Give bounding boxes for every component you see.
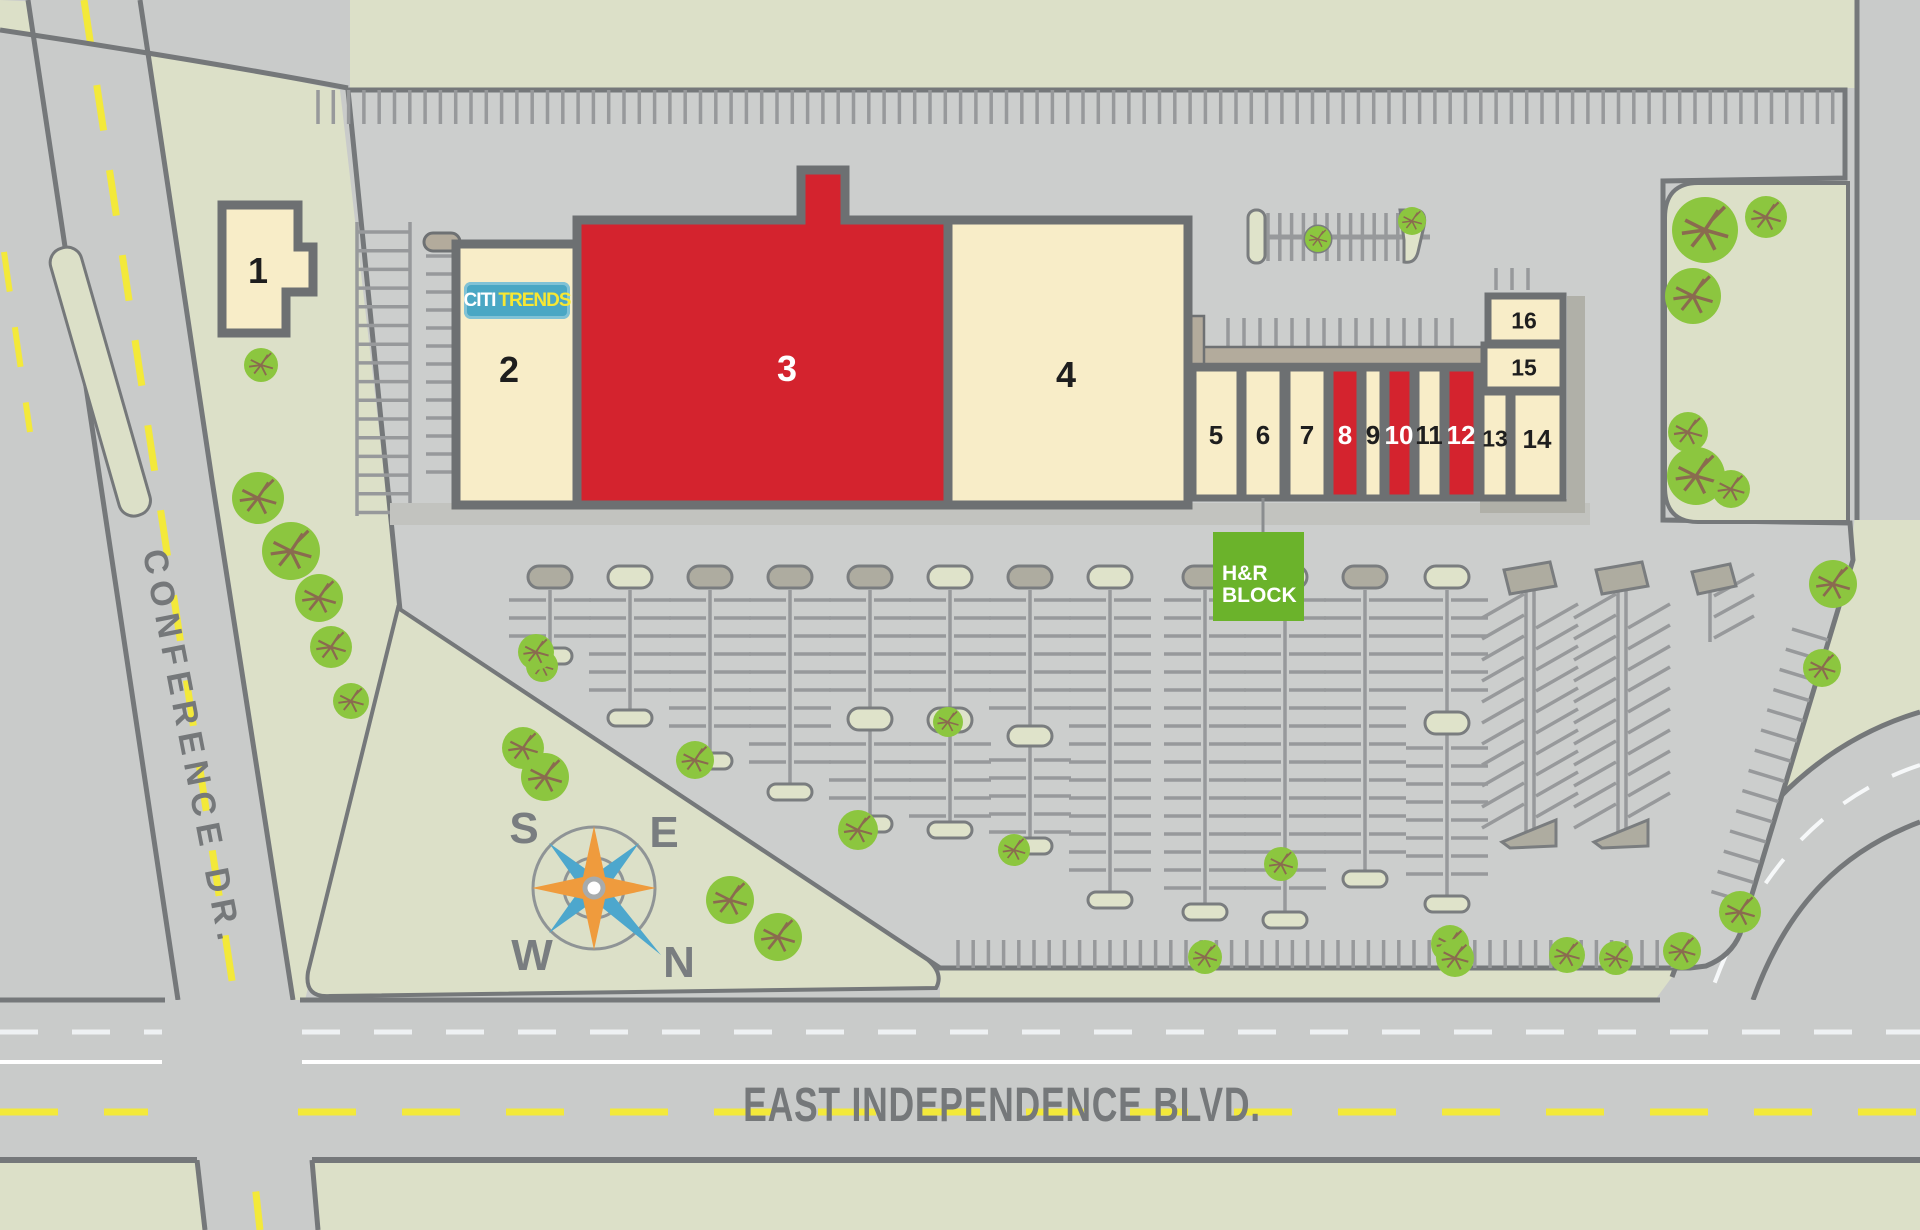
- unit-14-label[interactable]: 14: [1523, 426, 1552, 452]
- citi-trends-logo-part1: CITI: [464, 290, 496, 312]
- compass-north-label: N: [663, 941, 695, 985]
- unit-16-label[interactable]: 16: [1511, 310, 1537, 333]
- hr-block-logo-line2: BLOCK: [1222, 585, 1297, 607]
- unit-2-label[interactable]: 2: [499, 352, 519, 388]
- site-map-base: [0, 0, 1920, 1230]
- street-label-independence-blvd: EAST INDEPENDENCE BLVD.: [743, 1082, 1261, 1130]
- unit-8-label[interactable]: 8: [1338, 422, 1352, 448]
- unit-1-label[interactable]: 1: [248, 253, 268, 289]
- citi-trends-logo-part2: TRENDS: [498, 290, 570, 312]
- unit-3-label[interactable]: 3: [777, 351, 797, 387]
- unit-12-label[interactable]: 12: [1447, 422, 1476, 448]
- right-edge-road: [1857, 0, 1920, 520]
- unit-6-label[interactable]: 6: [1256, 422, 1270, 448]
- unit-13-label[interactable]: 13: [1482, 428, 1508, 451]
- compass-east-label: E: [649, 811, 678, 855]
- unit-4-label[interactable]: 4: [1056, 357, 1076, 393]
- unit-15-label[interactable]: 15: [1511, 357, 1537, 380]
- unit-7-label[interactable]: 7: [1300, 422, 1314, 448]
- site-plan: 1 2 3 4 5 6 7 8 9 10 11 12 13 14 15 16 C…: [0, 0, 1920, 1230]
- unit-5-label[interactable]: 5: [1209, 422, 1223, 448]
- unit-11-label[interactable]: 11: [1415, 422, 1443, 448]
- hr-block-logo[interactable]: H&R BLOCK: [1213, 532, 1304, 621]
- compass-south-label: S: [509, 807, 538, 851]
- unit-9-label[interactable]: 9: [1366, 422, 1380, 448]
- compass-west-label: W: [511, 934, 553, 978]
- hr-block-logo-line1: H&R: [1222, 563, 1297, 585]
- unit-10-label[interactable]: 10: [1385, 422, 1414, 448]
- citi-trends-logo[interactable]: CITI TRENDS: [464, 282, 570, 319]
- building-3: [577, 170, 948, 505]
